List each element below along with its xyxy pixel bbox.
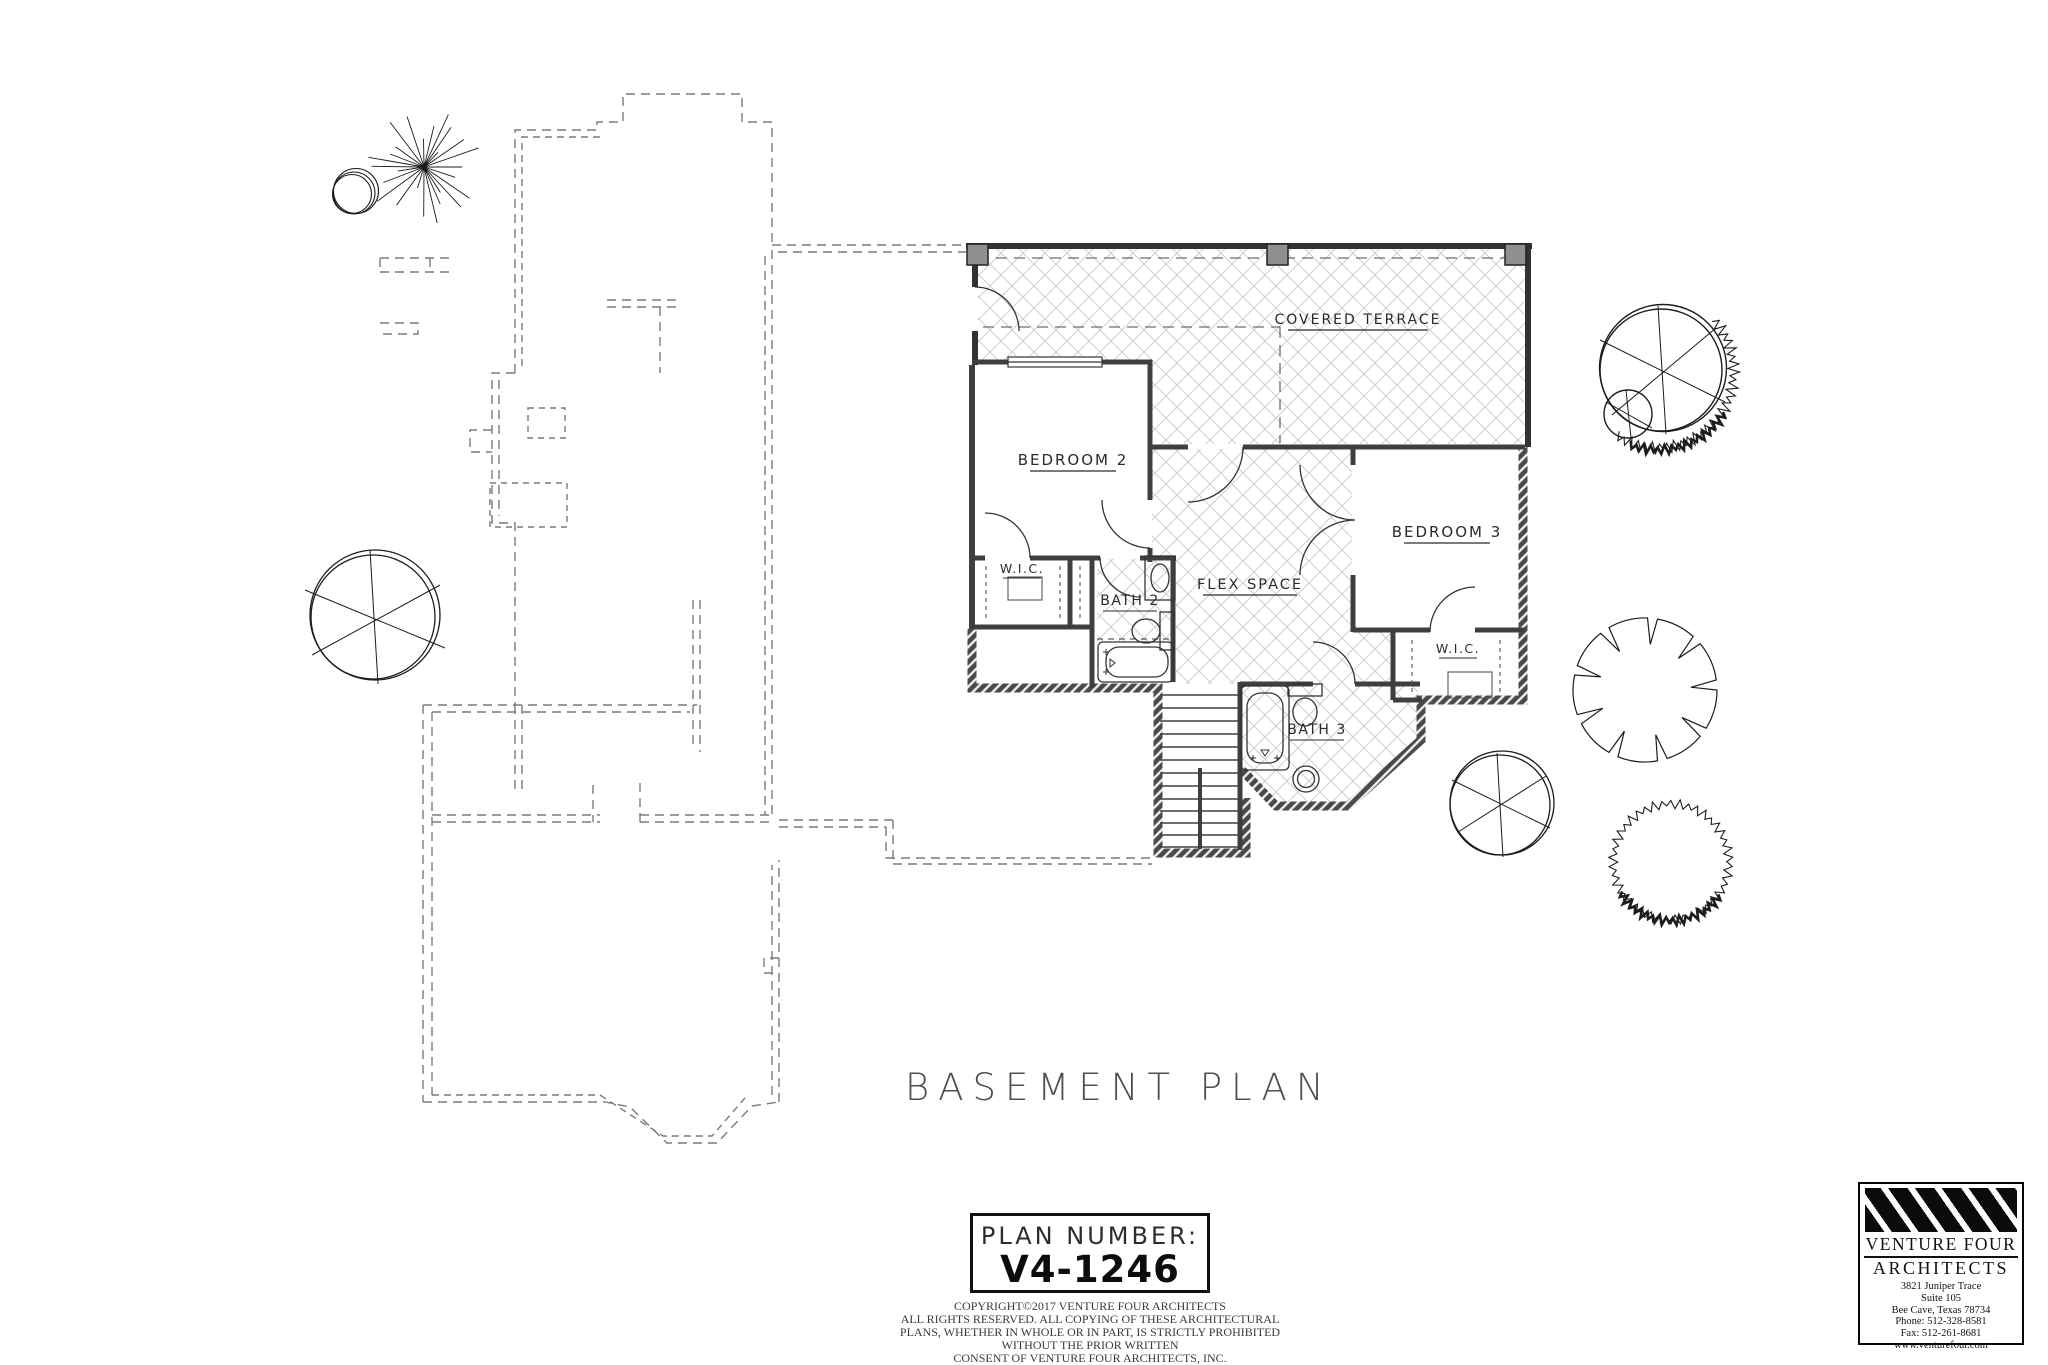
copyright-line: CONSENT OF VENTURE FOUR ARCHITECTS, INC. — [880, 1352, 1300, 1365]
room-label-flex-space: FLEX SPACE — [1197, 577, 1303, 593]
tree-symbol-pinwheel — [1573, 618, 1717, 762]
copyright-notice: COPYRIGHT©2017 VENTURE FOUR ARCHITECTS A… — [880, 1300, 1300, 1365]
room-label-bath3: BATH 3 — [1287, 722, 1347, 738]
architect-name-line1: VENTURE FOUR — [1864, 1234, 2018, 1258]
architect-logo-icon — [1865, 1188, 2017, 1232]
tree-symbol-bottom-circle — [1450, 751, 1554, 857]
architect-address3: Bee Cave, Texas 78734 — [1860, 1305, 2022, 1317]
tree-symbol-zigzag-thick — [1620, 891, 1720, 925]
plan-number-value: V4-1246 — [973, 1248, 1207, 1291]
room-label-bedroom3: BEDROOM 3 — [1392, 523, 1503, 541]
tree-symbol-right-top — [1600, 305, 1727, 439]
tree-scribble-arc-thick — [1631, 412, 1726, 454]
architect-fax: Fax: 512-261-8681 — [1860, 1328, 2022, 1340]
plan-number-label: PLAN NUMBER: — [973, 1222, 1207, 1250]
room-label-covered-terrace: COVERED TERRACE — [1274, 312, 1441, 328]
flex-space-hatch — [1152, 449, 1391, 697]
plan-number-box: PLAN NUMBER: V4-1246 — [970, 1213, 1210, 1293]
room-label-wic-right: W.I.C. — [1436, 641, 1480, 656]
tree-symbol-small-scribble — [333, 169, 379, 215]
architect-website: www.venturefour.com — [1860, 1340, 2022, 1352]
tree-scribble-arc — [1618, 320, 1740, 453]
floor-plan-drawing: COVERED TERRACE BEDROOM 2 BEDROOM 3 W.I.… — [0, 0, 2048, 1365]
bedroom2-window — [1008, 357, 1102, 367]
architect-title-block: VENTURE FOUR ARCHITECTS 3821 Juniper Tra… — [1858, 1182, 2024, 1345]
tree-symbol-left-large — [305, 550, 445, 684]
room-label-bedroom2: BEDROOM 2 — [1018, 451, 1129, 469]
room-label-bath2: BATH 2 — [1100, 593, 1160, 609]
room-label-wic-left: W.I.C. — [1000, 561, 1044, 576]
page-title: BASEMENT PLAN — [905, 1066, 1285, 1109]
architect-address1: 3821 Juniper Trace — [1860, 1281, 2022, 1293]
architect-phone: Phone: 512-328-8581 — [1860, 1316, 2022, 1328]
architect-name-line2: ARCHITECTS — [1864, 1258, 2018, 1279]
architect-address2: Suite 105 — [1860, 1293, 2022, 1305]
terrace-hatch — [978, 249, 1529, 444]
basement-floor-plan-sheet: COVERED TERRACE BEDROOM 2 BEDROOM 3 W.I.… — [0, 0, 2048, 1365]
bath3-hatch — [1240, 686, 1418, 803]
tree-symbol-starburst — [368, 115, 478, 223]
